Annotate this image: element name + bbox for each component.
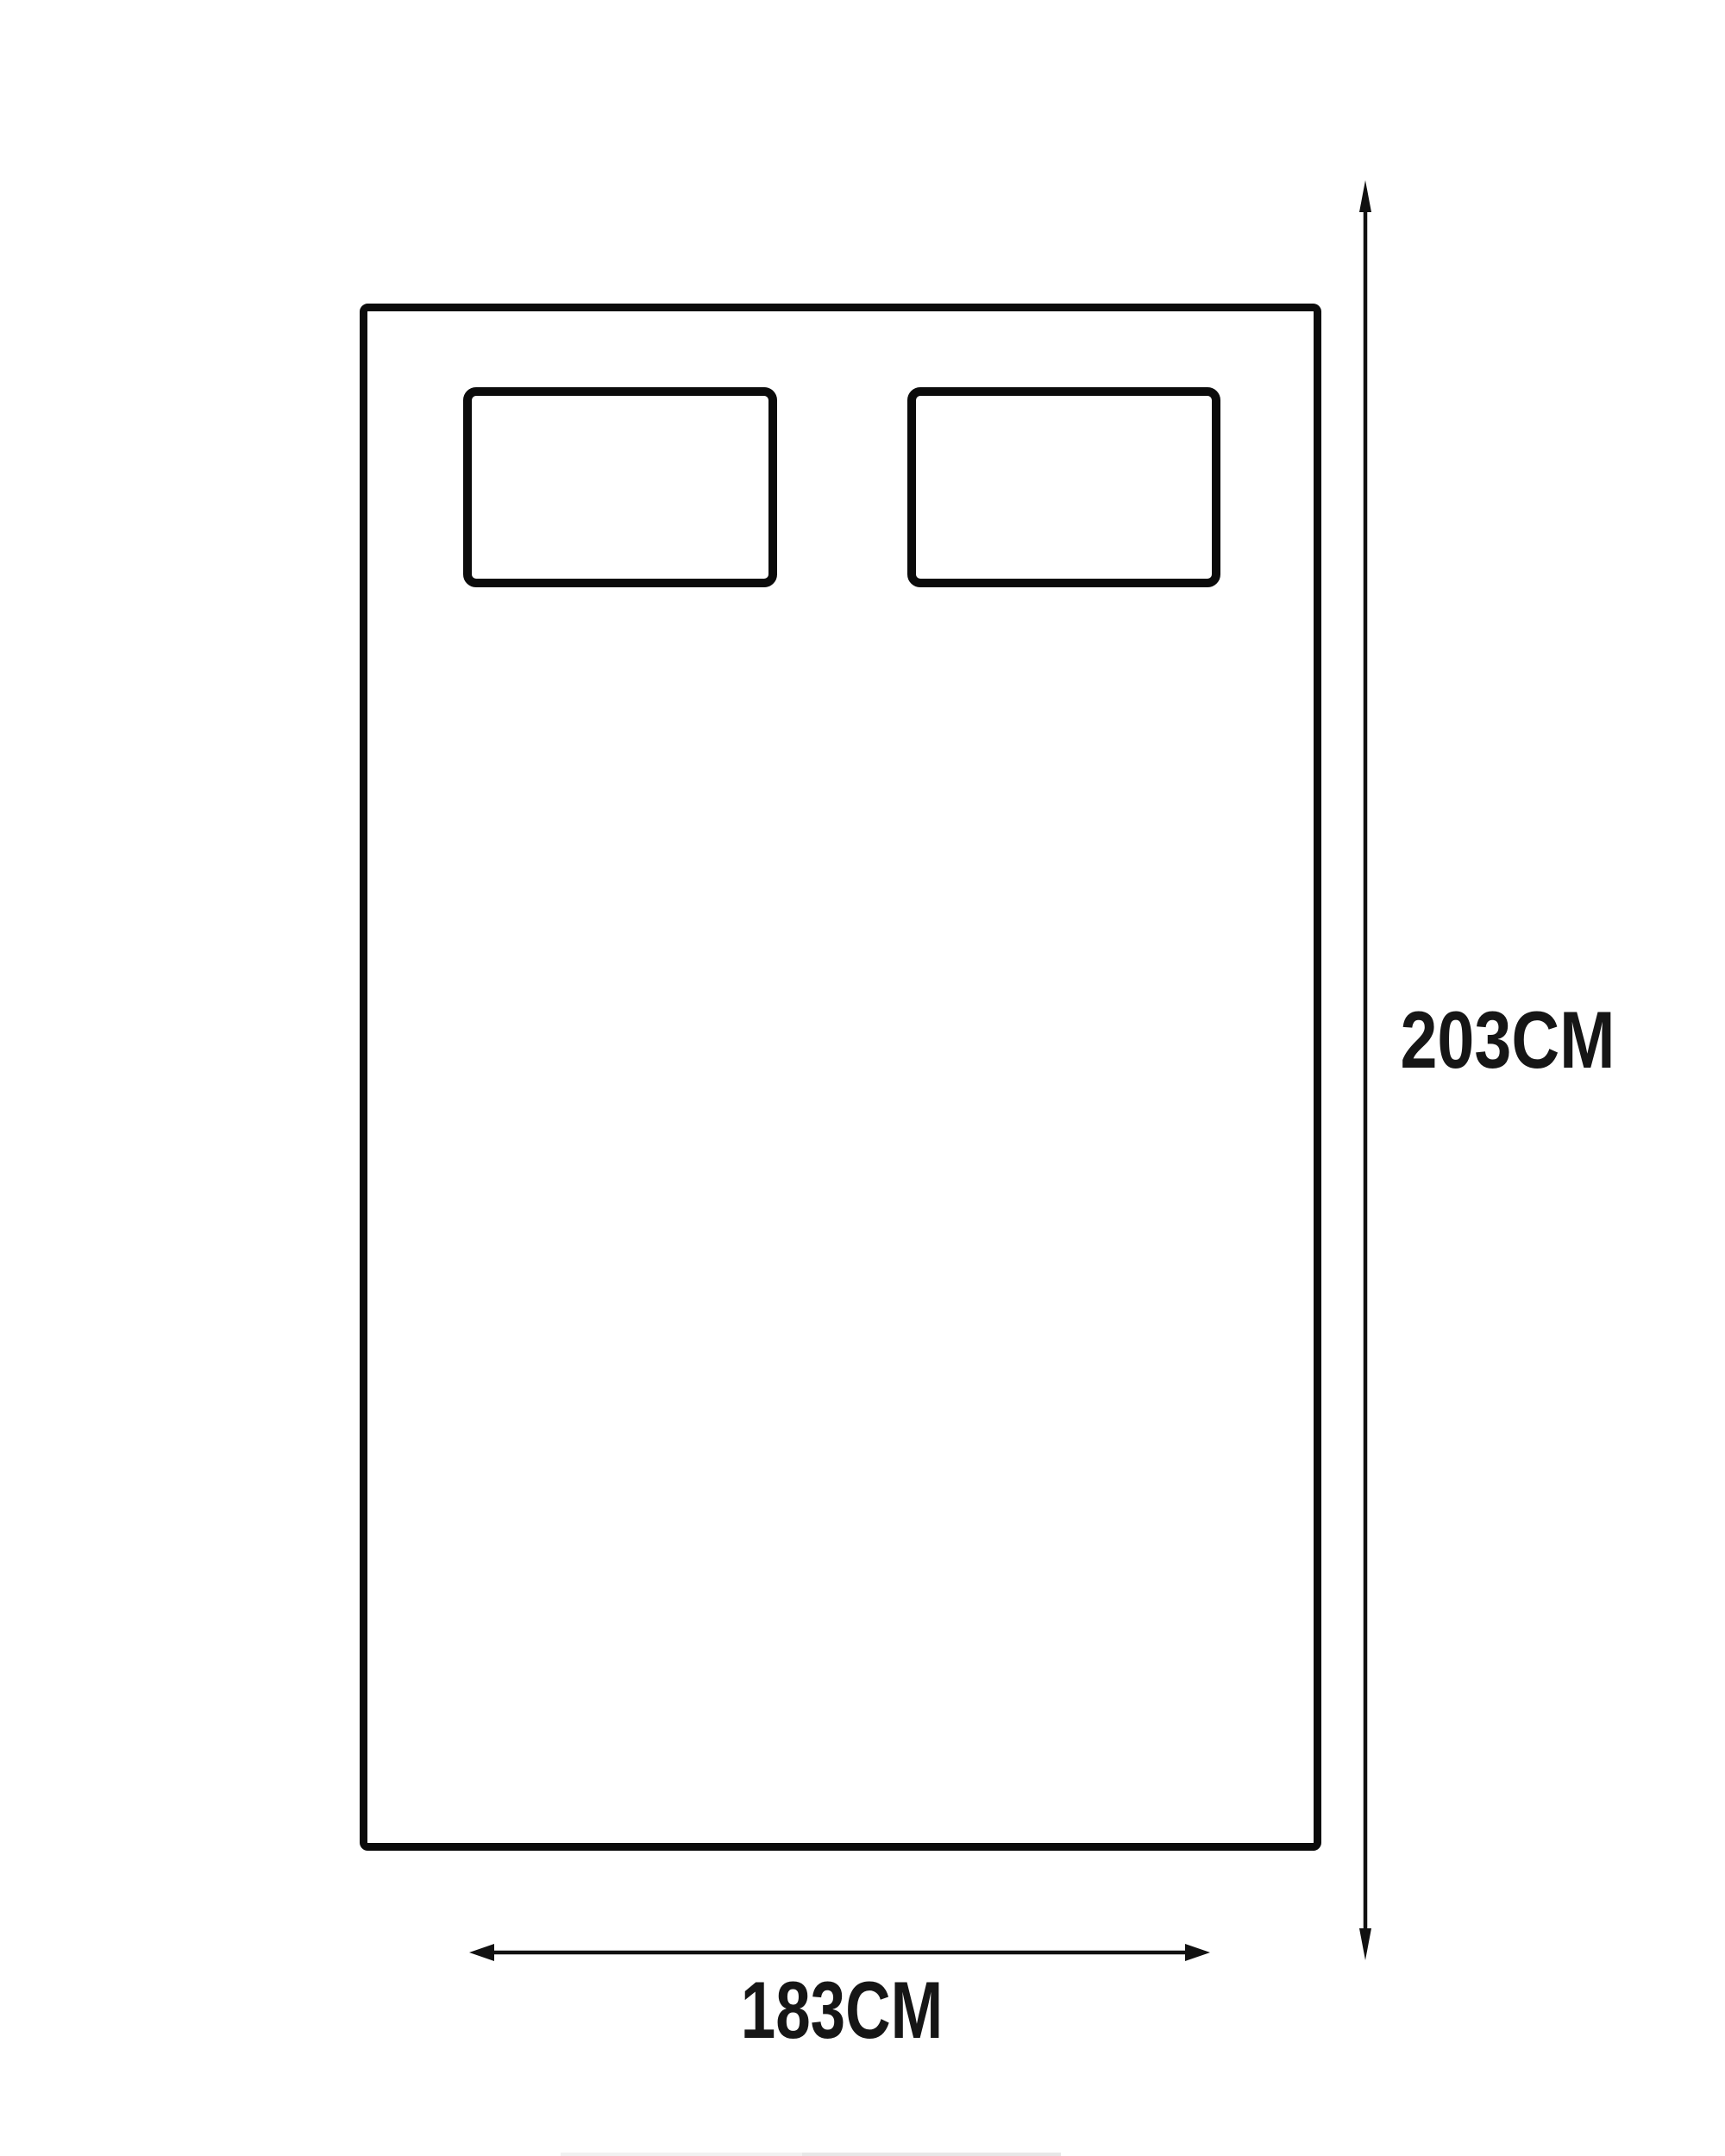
svg-text:183CM: 183CM	[741, 1965, 944, 2055]
svg-text:203CM: 203CM	[1400, 995, 1615, 1086]
